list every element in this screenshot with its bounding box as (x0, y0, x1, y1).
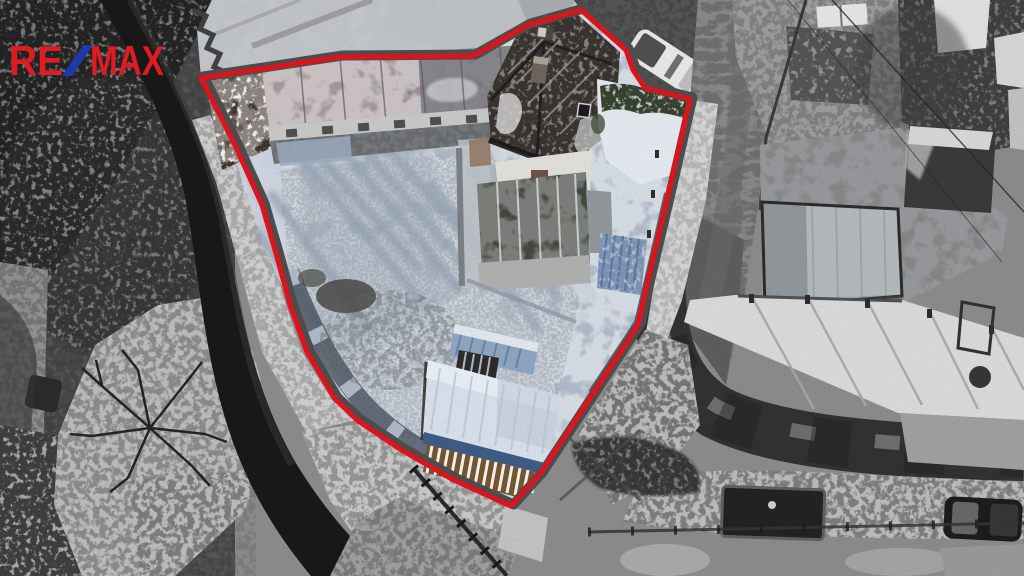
svg-text:MAX: MAX (90, 37, 164, 84)
svg-text:RE: RE (9, 37, 63, 84)
